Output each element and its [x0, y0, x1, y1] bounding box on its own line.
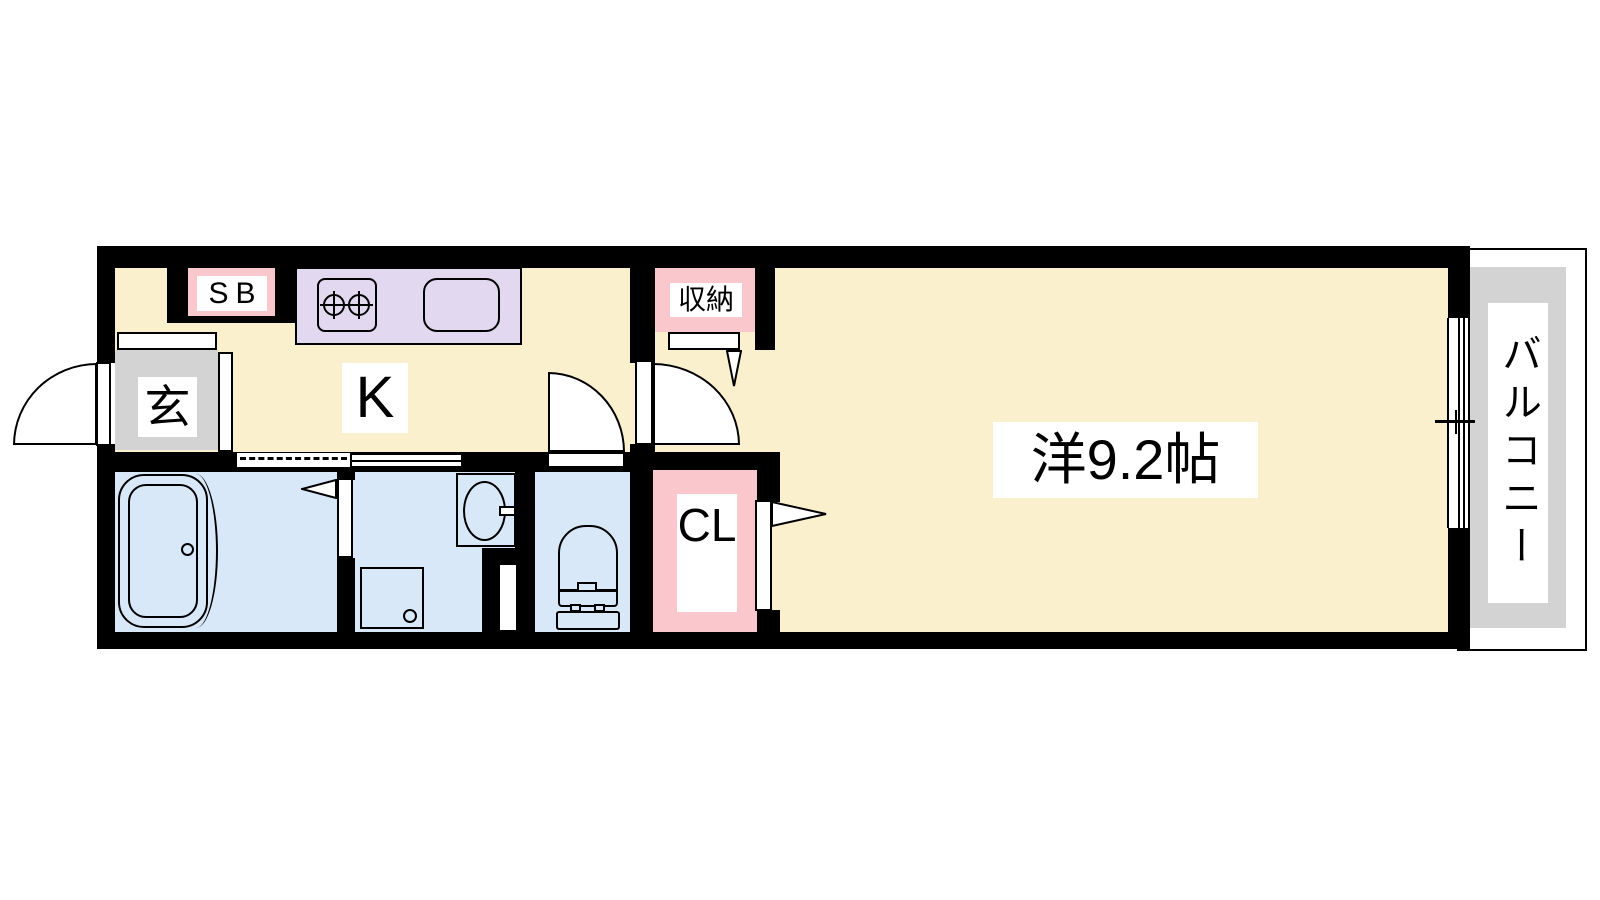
toilet-door-leaf	[547, 452, 625, 468]
kitchen-label-text: K	[356, 369, 395, 427]
kitchen-label: K	[342, 363, 408, 433]
storage-door-leaf	[668, 332, 740, 350]
window-rail	[1463, 318, 1465, 528]
main-room-label-text: 洋9.2帖	[1031, 432, 1221, 488]
washbasin-tap-icon	[499, 506, 516, 516]
right-wall-lower	[1448, 527, 1470, 649]
shoebox-label: SB	[197, 276, 267, 311]
bath-folding-door-icon	[301, 479, 337, 499]
main-room-label: 洋9.2帖	[993, 422, 1258, 498]
washroom-toilet-wall-upper	[515, 472, 535, 548]
entrance-step-right	[218, 352, 233, 452]
center-wall-upper	[630, 268, 655, 363]
entrance-step-top	[117, 332, 217, 350]
dashed-line	[240, 457, 347, 460]
closet-label: CL	[677, 494, 737, 612]
closet-label-text: CL	[677, 498, 737, 553]
washroom-sliding-door	[350, 453, 463, 468]
left-wall-upper	[97, 246, 115, 363]
storage-label: 収納	[670, 283, 742, 317]
toilet-notch	[577, 582, 597, 592]
bath-partition-wall	[337, 558, 355, 632]
kitchen-sink-icon	[423, 278, 500, 332]
shoebox-label-text: SB	[208, 279, 262, 309]
left-wall-lower	[97, 444, 115, 649]
closet-folding-door-icon	[771, 501, 827, 527]
bathtub-drain-icon	[181, 543, 194, 556]
top-wall	[97, 246, 1462, 268]
toilet-bowl-icon	[558, 525, 618, 607]
entrance-door-swing	[13, 363, 97, 445]
balcony-label: バルコニー	[1488, 303, 1548, 603]
window-rail	[1458, 318, 1460, 528]
washroom-opening-dashed	[237, 453, 350, 467]
stove-burner-icon	[323, 294, 345, 316]
washer-drain-icon	[403, 609, 417, 623]
window-cross-mark-v	[1455, 410, 1457, 434]
floor-plan: バルコニー 玄 SB K 収納	[0, 0, 1600, 900]
entrance-label: 玄	[138, 377, 197, 437]
right-wall-upper	[1448, 246, 1470, 320]
closet-folding-door-leaf	[755, 500, 772, 611]
balcony-window	[1447, 318, 1470, 528]
closet-right-wall-upper	[757, 472, 780, 502]
storage-label-text: 収納	[678, 286, 734, 314]
closet-right-wall-lower	[757, 610, 780, 632]
main-room-door-leaf	[635, 360, 653, 445]
entrance-door-leaf	[96, 362, 111, 446]
entrance-label-text: 玄	[145, 384, 191, 430]
closet-top-wall	[655, 452, 780, 472]
balcony-label-text: バルコニー	[1498, 333, 1538, 573]
stove-burner-icon	[348, 294, 370, 316]
sliding-door-line	[352, 460, 461, 462]
toilet-tank-icon	[556, 611, 620, 630]
storage-folding-door-icon	[726, 350, 742, 388]
toilet-wall-door-slot	[500, 565, 516, 630]
bath-folding-door-leaf	[337, 478, 353, 558]
center-wall-lower	[630, 444, 655, 632]
storage-right-wall	[755, 268, 775, 350]
bottom-wall	[97, 632, 1470, 649]
